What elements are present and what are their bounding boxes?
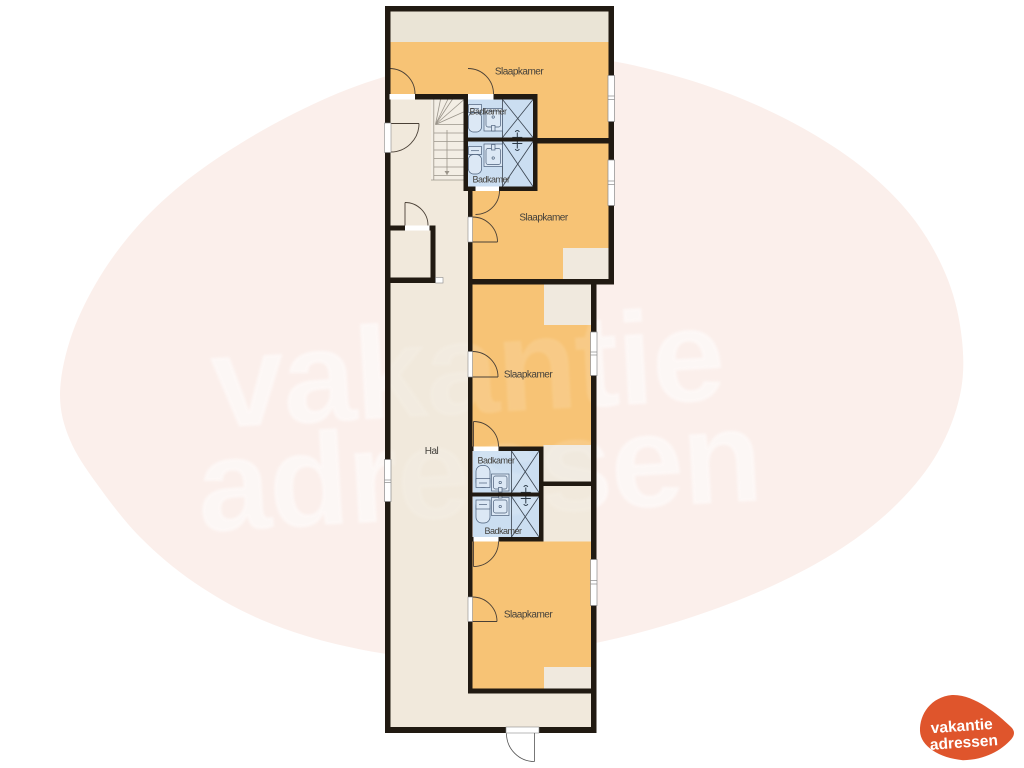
svg-text:Slaapkamer: Slaapkamer	[495, 67, 545, 78]
svg-text:Badkamer: Badkamer	[477, 456, 515, 466]
svg-text:Slaapkamer: Slaapkamer	[504, 610, 554, 621]
svg-text:Badkamer: Badkamer	[469, 107, 507, 117]
svg-text:Badkamer: Badkamer	[484, 526, 522, 536]
svg-text:Badkamer: Badkamer	[472, 175, 510, 185]
svg-text:Slaapkamer: Slaapkamer	[519, 213, 569, 224]
svg-text:Slaapkamer: Slaapkamer	[504, 370, 554, 381]
svg-text:Hal: Hal	[425, 446, 439, 457]
